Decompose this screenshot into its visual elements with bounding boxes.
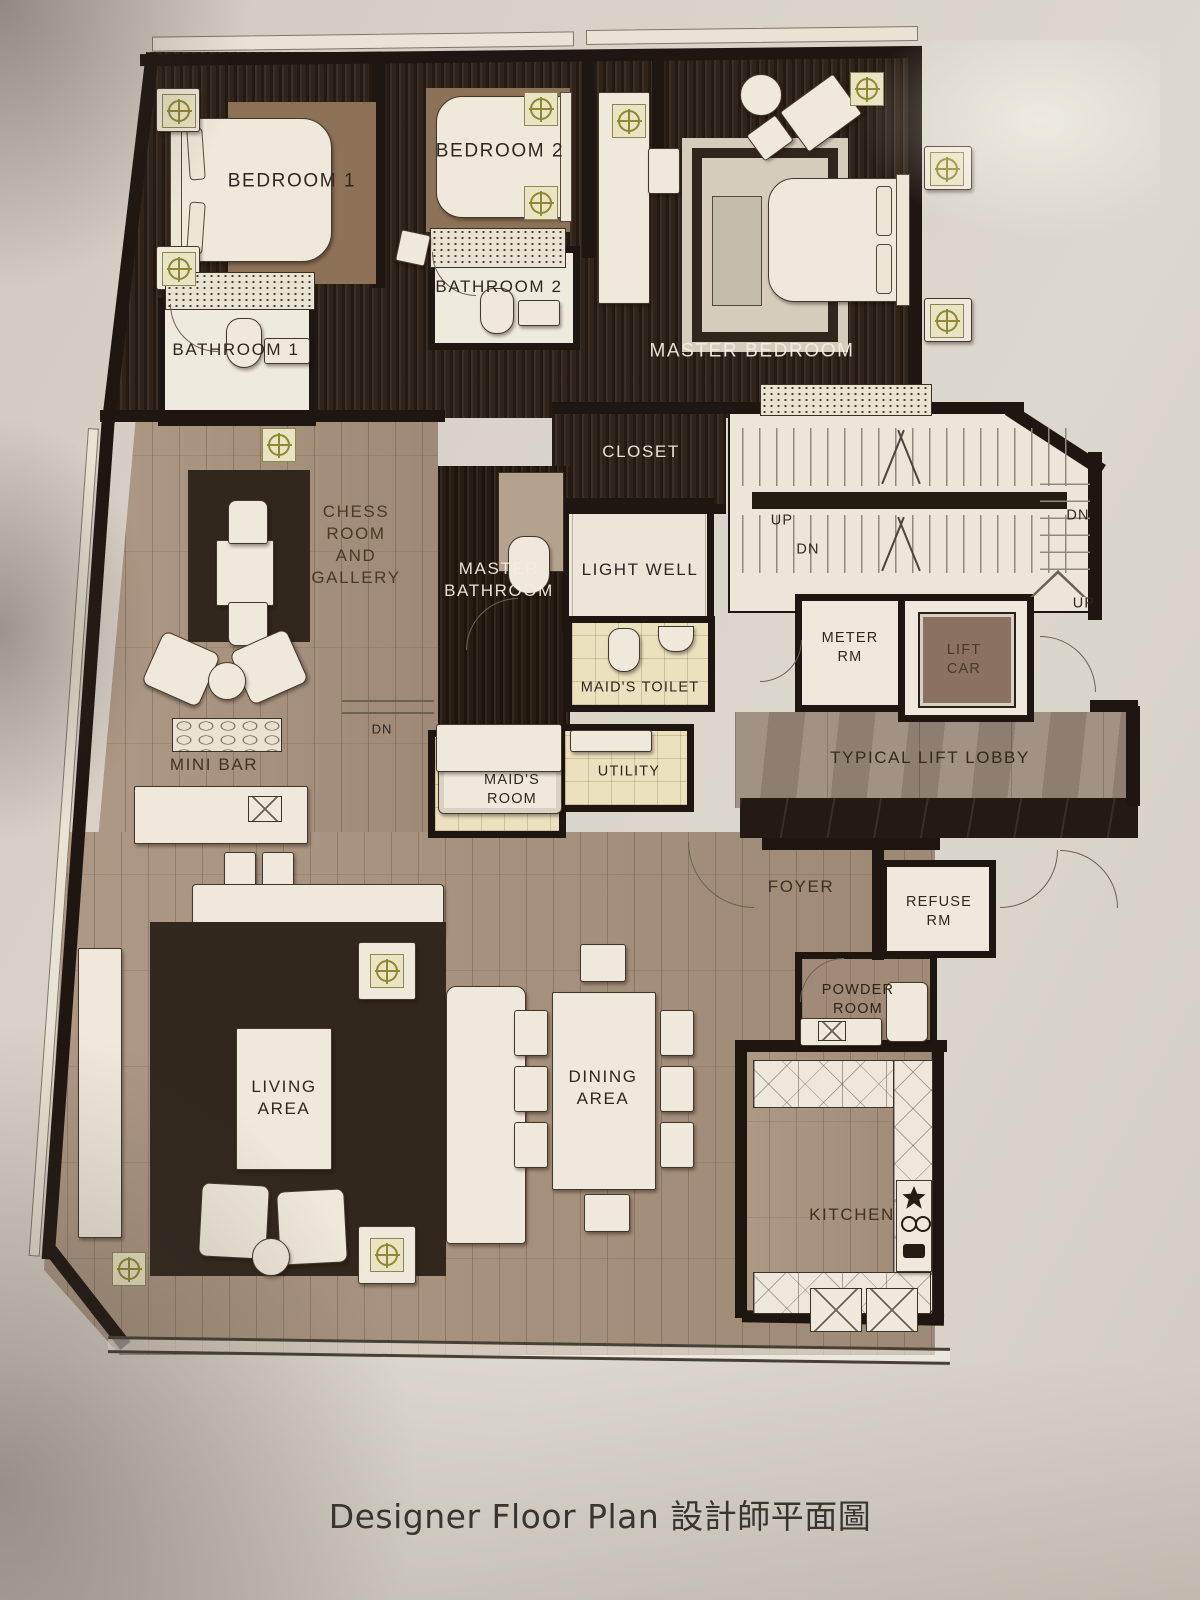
stair-label-dn-right: DN: [1066, 507, 1089, 526]
room-label-utility: UTILITY: [598, 763, 660, 782]
burner-icon: [915, 1216, 931, 1232]
stool-icon: [224, 852, 256, 888]
chess-table-icon: [216, 540, 274, 606]
downlight-icon: [930, 304, 964, 338]
room-label-bedroom-1: BEDROOM 1: [228, 170, 356, 195]
rug-panel: [712, 196, 762, 306]
downlight-icon: [524, 92, 558, 126]
downlight-icon: [612, 104, 646, 138]
stair-label-up-right: UP: [1073, 595, 1096, 614]
room-label-light-well: LIGHT WELL: [582, 559, 699, 581]
kitchen-sink-icon: [866, 1288, 918, 1332]
wall: [582, 58, 594, 258]
door-arc-icon: [1000, 850, 1058, 908]
dining-chair-icon: [580, 944, 626, 982]
room-label-lift-car: LIFT CAR: [947, 641, 982, 679]
wall: [908, 48, 922, 416]
hall-label-dn: DN: [372, 722, 393, 739]
bed-icon: [436, 724, 562, 772]
downlight-icon: [524, 186, 558, 220]
round-table-icon: [208, 662, 246, 700]
room-label-maids-room: MAID'S ROOM: [484, 771, 540, 809]
photo-shadow: [0, 1360, 1200, 1600]
console-icon: [78, 948, 122, 1238]
downlight-icon: [850, 72, 884, 106]
bar-sink-icon: [248, 796, 282, 822]
hall-shelf-icon: [648, 148, 680, 194]
downlight-icon: [162, 94, 196, 128]
downlight-icon: [162, 252, 196, 286]
wall: [932, 1050, 944, 1322]
floor-plan-photo: BEDROOM 1 BEDROOM 2 MASTER BEDROOM BATHR…: [0, 0, 1200, 1600]
room-label-master-bathroom: MASTER BATHROOM: [444, 558, 554, 602]
bed-headboard: [896, 174, 910, 306]
room-label-chess-room: CHESS ROOM AND GALLERY: [311, 501, 400, 589]
bed-headboard: [170, 114, 182, 266]
round-stool-icon: [740, 74, 782, 116]
dining-chair-icon: [660, 1010, 694, 1056]
door-arc-icon: [1060, 850, 1118, 908]
dining-chair-icon: [514, 1010, 548, 1056]
round-table-icon: [252, 1238, 290, 1276]
pillow-icon: [876, 244, 892, 294]
room-label-lift-lobby: TYPICAL LIFT LOBBY: [830, 747, 1030, 769]
room-label-meter-room: METER RM: [822, 629, 879, 667]
room-label-refuse-room: REFUSE RM: [906, 893, 972, 931]
room-label-mini-bar: MINI BAR: [170, 754, 258, 776]
wall: [762, 838, 940, 850]
dining-chair-icon: [660, 1066, 694, 1112]
stair-flight-upper: [742, 428, 1070, 486]
downlight-icon: [370, 954, 404, 988]
stair-label-dn-left: DN: [796, 541, 819, 560]
door-arc-icon: [1040, 636, 1096, 692]
step-lines: [342, 712, 434, 714]
room-label-master-bedroom: MASTER BEDROOM: [649, 340, 854, 365]
dresser-icon: [760, 384, 932, 416]
window-band: [586, 26, 918, 45]
counter-icon: [570, 730, 652, 752]
room-label-closet: CLOSET: [602, 441, 680, 463]
stair-label-up-left: UP: [771, 512, 794, 531]
burner-icon: [903, 1244, 925, 1258]
downlight-icon: [112, 1252, 146, 1286]
toilet-icon: [608, 628, 640, 672]
room-label-bathroom-2: BATHROOM 2: [435, 276, 562, 298]
kitchen-sink-icon: [810, 1288, 862, 1332]
downlight-icon: [262, 428, 296, 462]
window-band: [152, 31, 574, 51]
downlight-icon: [930, 152, 964, 186]
chair-icon: [228, 500, 268, 544]
room-label-kitchen: KITCHEN: [809, 1204, 895, 1226]
wall: [1126, 706, 1140, 806]
room-label-maids-toilet: MAID'S TOILET: [581, 679, 700, 698]
downlight-icon: [370, 1238, 404, 1272]
dining-chair-icon: [514, 1122, 548, 1168]
room-label-bedroom-2: BEDROOM 2: [436, 140, 564, 165]
room-label-powder-room: POWDER ROOM: [822, 981, 894, 1019]
wall: [552, 504, 726, 514]
stool-icon: [262, 852, 294, 888]
dining-chair-icon: [514, 1066, 548, 1112]
stair-center-wall: [752, 492, 1067, 509]
plan-caption: Designer Floor Plan 設計師平面圖: [0, 1490, 1200, 1538]
room-label-living-area: LIVING AREA: [251, 1076, 316, 1120]
wall: [735, 1040, 747, 1318]
dining-chair-icon: [584, 1194, 630, 1232]
dining-chair-icon: [660, 1122, 694, 1168]
vanity-icon: [518, 300, 560, 326]
wall: [872, 850, 884, 960]
room-label-bathroom-1: BATHROOM 1: [172, 339, 299, 361]
room-label-dining-area: DINING AREA: [568, 1066, 637, 1110]
pillow-icon: [876, 186, 892, 236]
room-label-foyer: FOYER: [768, 876, 835, 898]
basin-icon: [818, 1021, 846, 1041]
lobby-black-marble-band: [740, 798, 1138, 838]
bench-icon: [172, 718, 282, 752]
wall: [100, 410, 445, 422]
step-lines: [342, 700, 434, 702]
